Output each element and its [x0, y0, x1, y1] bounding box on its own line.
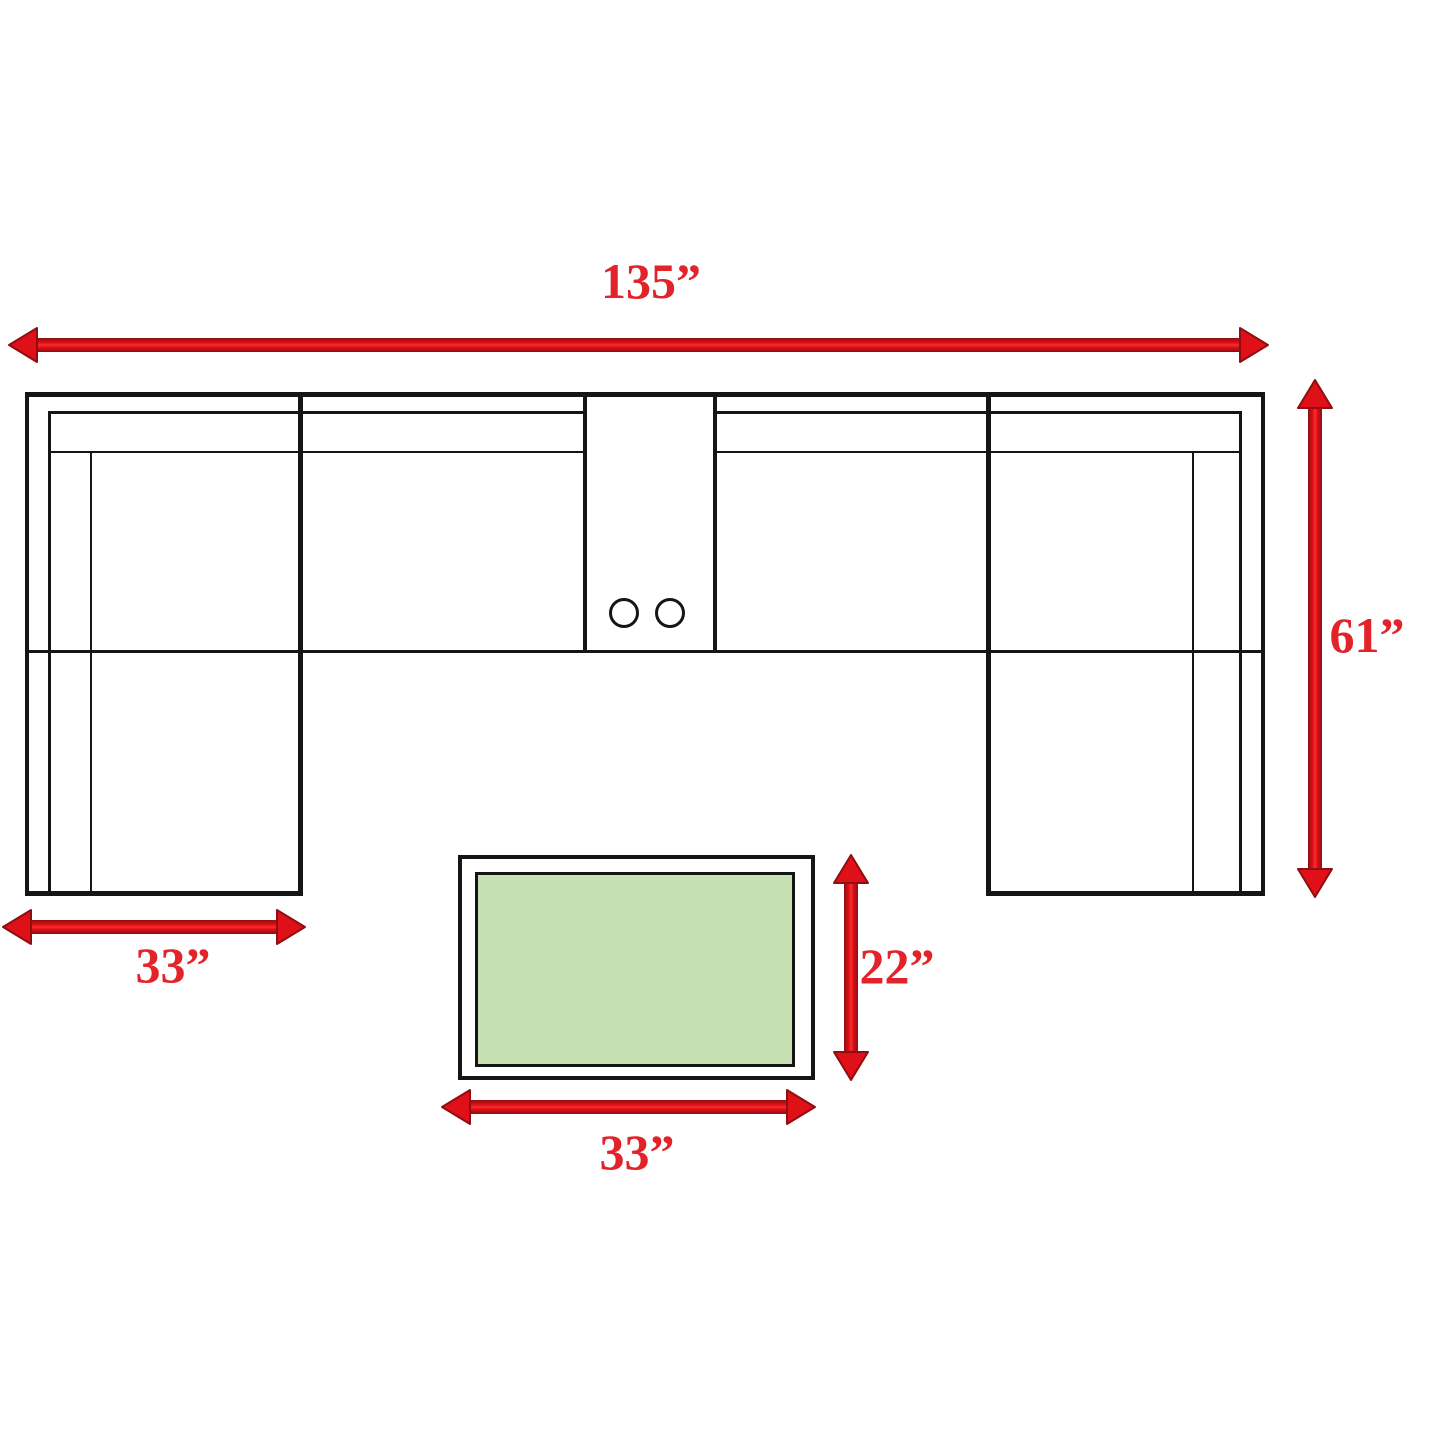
console-cupholder-icon — [655, 598, 685, 628]
sofa-outline-hline — [48, 411, 585, 414]
floorplan-canvas: 135” 61” 33” 22” 33” — [0, 0, 1445, 1445]
coffee-table-top-surface — [475, 872, 795, 1067]
sofa-outline-vline — [1239, 411, 1242, 894]
console-cupholder-icon — [609, 598, 639, 628]
sofa-outline-hline — [48, 451, 585, 453]
sofa-outline-vline — [25, 392, 29, 896]
sofa-outline-vline — [713, 392, 717, 653]
sofa-outline-vline — [90, 451, 92, 894]
sofa-outline-vline — [986, 392, 991, 896]
sofa-outline-hline — [713, 451, 1242, 453]
sofa-depth-dimension-label: 61” — [1330, 610, 1405, 660]
sofa-outline-vline — [1261, 392, 1265, 896]
sofa-outline-vline — [583, 392, 587, 653]
left-chaise-width-dimension-label: 33” — [136, 940, 211, 990]
sofa-outline-hline — [986, 891, 1265, 896]
sofa-outline-vline — [48, 411, 51, 894]
table-width-dimension-label: 33” — [600, 1127, 675, 1177]
sofa-depth-arrow — [1296, 380, 1334, 897]
sofa-width-arrow — [9, 326, 1268, 364]
sofa-outline-hline — [25, 891, 303, 896]
sofa-outline-vline — [298, 392, 303, 896]
sofa-width-dimension-label: 135” — [601, 256, 701, 306]
sofa-outline-vline — [1192, 451, 1194, 894]
table-width-arrow — [442, 1088, 815, 1126]
sofa-outline-hline — [25, 650, 1265, 653]
sofa-outline-hline — [25, 392, 1265, 397]
table-depth-dimension-label: 22” — [860, 941, 935, 991]
sofa-outline-hline — [713, 411, 1242, 414]
